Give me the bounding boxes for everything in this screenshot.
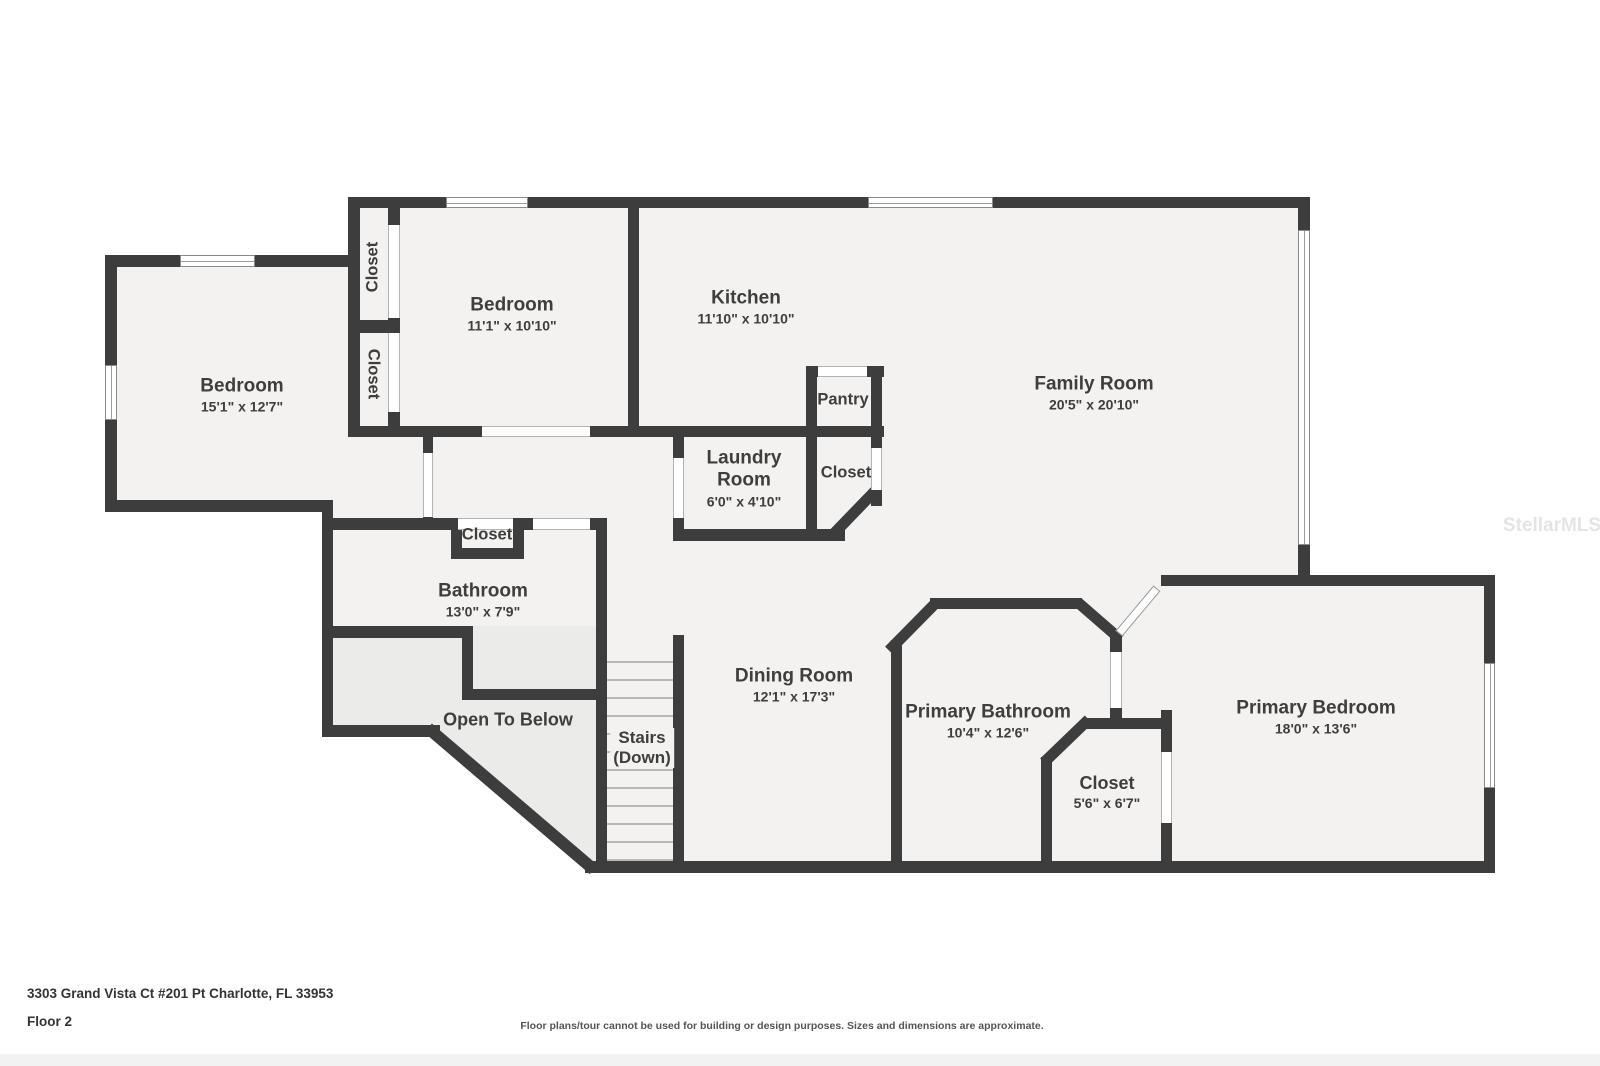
- window: [105, 365, 117, 420]
- wall: [628, 197, 639, 437]
- floor-plan-page: Bedroom 15'1" x 12'7" Closet Closet Bedr…: [0, 0, 1600, 1066]
- window: [1298, 230, 1310, 545]
- room-name: Stairs: [610, 728, 674, 748]
- wall: [105, 500, 333, 512]
- room-dims: 18'0" x 13'6": [1236, 721, 1395, 739]
- room-dims: 20'5" x 20'10": [1034, 397, 1153, 415]
- room-name: Bedroom: [200, 376, 283, 398]
- room-dims: 11'1" x 10'10": [467, 318, 556, 336]
- room-dims: 11'10" x 10'10": [697, 311, 794, 329]
- room-label-closet-primary: Closet 5'6" x 6'7": [1074, 773, 1141, 813]
- door-opening: [871, 448, 882, 490]
- door-opening: [533, 518, 590, 530]
- room-label-primary-bedroom: Primary Bedroom 18'0" x 13'6": [1236, 698, 1395, 739]
- room-label-dining-room: Dining Room 12'1" x 17'3": [735, 666, 853, 707]
- room-name: Closet: [462, 525, 512, 544]
- room-dims: 10'4" x 12'6": [905, 725, 1071, 743]
- wall-exterior-bottom: [585, 861, 1495, 873]
- stellar-mls-watermark: StellarMLS: [1503, 515, 1600, 537]
- window: [446, 197, 528, 208]
- door-opening: [673, 458, 684, 518]
- room-label-kitchen: Kitchen 11'10" x 10'10": [697, 288, 794, 329]
- room-label-stairs: Stairs (Down): [610, 728, 674, 768]
- door-opening: [423, 453, 433, 517]
- bottom-strip: [0, 1054, 1600, 1066]
- room-name: Family Room: [1034, 374, 1153, 396]
- door-opening: [482, 426, 590, 437]
- room-dims: 12'1" x 17'3": [735, 689, 853, 707]
- room-label-primary-bathroom: Primary Bathroom 10'4" x 12'6": [905, 702, 1071, 743]
- wall: [462, 626, 473, 700]
- room-label-closet-laundry: Closet: [821, 463, 871, 482]
- room-label-closet-lower: Closet: [364, 349, 383, 399]
- wall: [322, 512, 333, 737]
- wall: [1110, 708, 1122, 719]
- wall: [673, 635, 684, 861]
- wall: [806, 366, 817, 541]
- wall: [333, 626, 473, 638]
- room-name: Closet: [1074, 773, 1141, 794]
- room-label-family-room: Family Room 20'5" x 20'10": [1034, 374, 1153, 415]
- wall: [673, 529, 845, 541]
- window: [1484, 663, 1495, 788]
- wall: [513, 530, 524, 550]
- wall: [348, 197, 360, 426]
- door-opening: [818, 366, 867, 377]
- room-label-laundry: Laundry Room 6'0" x 4'10": [688, 447, 800, 510]
- window: [868, 197, 993, 208]
- door-opening: [388, 225, 400, 318]
- room-name: Closet: [821, 463, 871, 482]
- room-dims: 6'0" x 4'10": [688, 493, 800, 511]
- wall: [930, 598, 1082, 609]
- room-label-bedroom-2: Bedroom 11'1" x 10'10": [467, 295, 556, 336]
- wall: [1083, 718, 1172, 729]
- room-label-closet-bathroom: Closet: [462, 525, 512, 544]
- room-dims: 5'6" x 6'7": [1074, 795, 1141, 813]
- room-dims: 13'0" x 7'9": [438, 604, 528, 622]
- wall: [451, 530, 462, 550]
- room-dims: 15'1" x 12'7": [200, 399, 283, 417]
- wall: [1041, 757, 1052, 861]
- room-name: Primary Bedroom: [1236, 698, 1395, 720]
- room-name: Primary Bathroom: [905, 702, 1071, 724]
- wall: [322, 725, 440, 737]
- room-label-pantry: Pantry: [817, 390, 868, 409]
- room-name: Bathroom: [438, 581, 528, 603]
- door-opening: [388, 333, 400, 412]
- wall: [462, 689, 607, 700]
- room-name: Bedroom: [467, 295, 556, 317]
- wall: [1161, 575, 1495, 586]
- wall: [1161, 823, 1172, 873]
- room-name: Dining Room: [735, 666, 853, 688]
- wall: [1161, 710, 1172, 752]
- door-opening: [1161, 752, 1172, 823]
- room-subname: (Down): [610, 748, 674, 768]
- floor-label: Floor 2: [27, 1014, 72, 1029]
- window: [180, 255, 255, 267]
- disclaimer-text: Floor plans/tour cannot be used for buil…: [520, 1020, 1043, 1032]
- room-name: Laundry Room: [688, 447, 800, 492]
- room-label-bathroom: Bathroom 13'0" x 7'9": [438, 581, 528, 622]
- room-label-bedroom-left: Bedroom 15'1" x 12'7": [200, 376, 283, 417]
- address-text: 3303 Grand Vista Ct #201 Pt Charlotte, F…: [27, 986, 333, 1001]
- room-name: Open To Below: [443, 709, 573, 730]
- room-label-closet-upper: Closet: [364, 242, 383, 292]
- room-name: Kitchen: [697, 288, 794, 310]
- wall: [596, 518, 607, 861]
- room-label-open-to-below: Open To Below: [443, 709, 573, 730]
- room-name: Pantry: [817, 390, 868, 409]
- wall: [891, 640, 902, 861]
- door-opening: [1110, 652, 1122, 708]
